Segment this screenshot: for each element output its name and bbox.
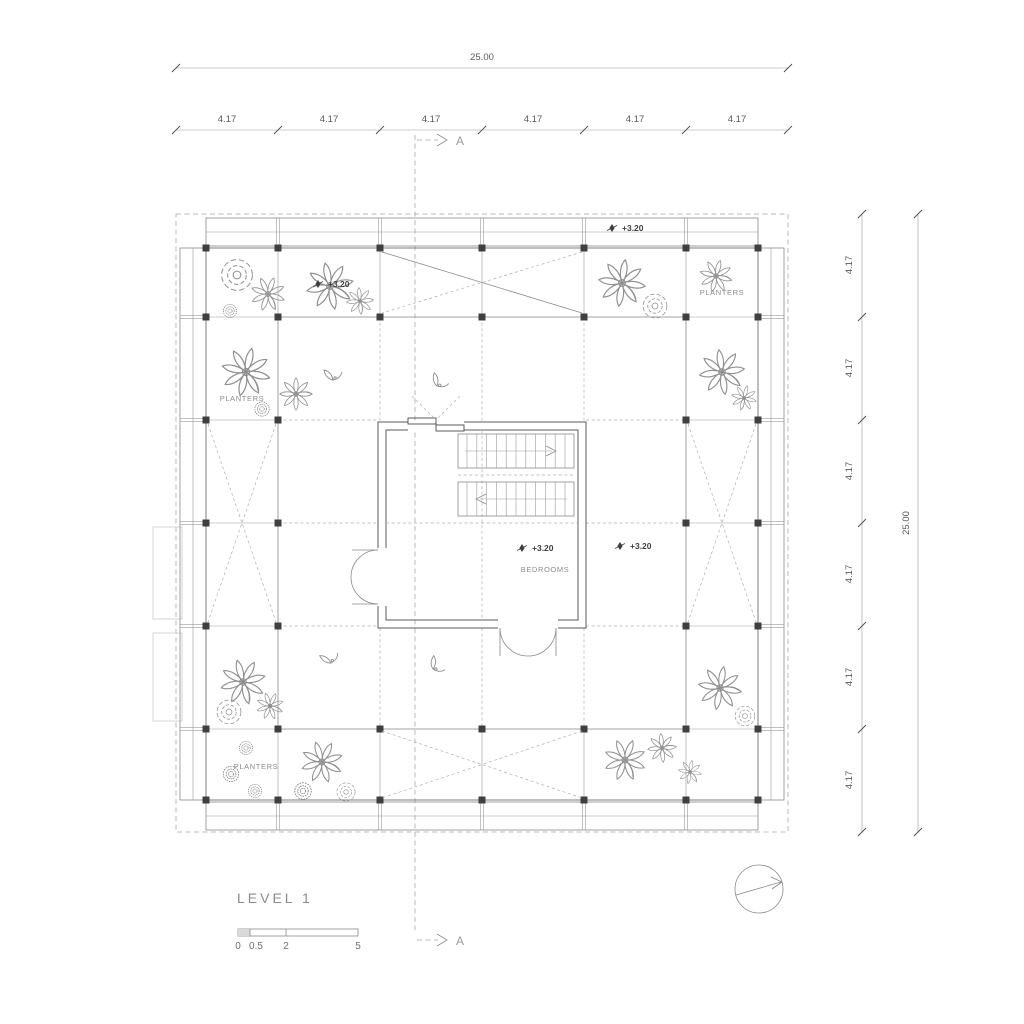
column: [755, 314, 762, 321]
planters-label: PLANTERS: [234, 762, 278, 771]
plant-flower: [697, 347, 748, 398]
column: [683, 797, 690, 804]
dim-label-bay: 4.17: [844, 565, 855, 584]
plant-mum: [255, 402, 269, 416]
dim-label-overall-top: 25.00: [470, 52, 494, 63]
dim-label-bay: 4.17: [844, 462, 855, 481]
plant-mum: [223, 304, 236, 317]
dim-label-overall-right: 25.00: [901, 511, 912, 535]
column: [203, 245, 210, 252]
dim-label-bay: 4.17: [844, 668, 855, 687]
column: [275, 726, 282, 733]
column: [203, 623, 210, 630]
scale-label: 2: [283, 941, 289, 952]
column: [581, 314, 588, 321]
plant-bush: [337, 783, 355, 801]
column: [683, 623, 690, 630]
stairs: [458, 434, 574, 516]
side-canopies: [153, 527, 182, 721]
column: [479, 245, 486, 252]
column: [275, 417, 282, 424]
spot-level-label: +3.20: [630, 541, 652, 551]
plant-flower: [596, 257, 649, 310]
spot-level-label: +3.20: [622, 223, 644, 233]
section-line-AA: A A: [415, 134, 465, 948]
column: [581, 245, 588, 252]
dim-label-bay: 4.17: [422, 114, 441, 125]
north-arrow-circle: [735, 865, 783, 913]
column: [203, 314, 210, 321]
structural-grid: [180, 218, 784, 830]
dim-label-bay: 4.17: [728, 114, 747, 125]
column: [275, 623, 282, 630]
column: [683, 245, 690, 252]
plant-flower: [727, 381, 761, 415]
floor-plan-drawing: 25.00 4.17 4.17 4.17 4.17 4.17 4.17 4.17…: [0, 0, 1024, 1024]
plant-flower: [296, 736, 348, 788]
column: [203, 797, 210, 804]
section-marker-bottom: A: [456, 934, 465, 948]
dim-label-bay: 4.17: [218, 114, 237, 125]
column: [203, 417, 210, 424]
column: [275, 797, 282, 804]
scale-bar: 0 0.5 2 5: [235, 929, 361, 952]
column: [203, 726, 210, 733]
north-arrow: [735, 865, 783, 913]
spot-level-icon: [615, 542, 625, 550]
planting: [212, 254, 761, 801]
dimension-top: 25.00 4.17 4.17 4.17 4.17 4.17 4.17: [172, 52, 792, 134]
dim-label-bay: 4.17: [320, 114, 339, 125]
plant-bush: [222, 260, 253, 291]
plant-flower: [253, 689, 288, 724]
floor-plan-sheet: 25.00 4.17 4.17 4.17 4.17 4.17 4.17 4.17…: [0, 0, 1024, 1024]
section-marker-top: A: [456, 134, 465, 148]
column: [581, 797, 588, 804]
scale-label: 5: [355, 941, 361, 952]
column: [377, 314, 384, 321]
dim-label-bay: 4.17: [844, 771, 855, 790]
title-block: LEVEL 1 0 0.5 2 5: [235, 890, 361, 952]
column: [275, 245, 282, 252]
column: [683, 520, 690, 527]
plant-mum: [239, 741, 252, 754]
plant-mum: [295, 783, 312, 800]
column: [377, 245, 384, 252]
plant-bush: [735, 706, 755, 726]
dimension-right: 4.17 4.17 4.17 4.17 4.17 4.17 25.00: [844, 210, 922, 836]
planters-label: PLANTERS: [220, 394, 264, 403]
plant-bush: [643, 294, 667, 318]
plant-flower: [217, 343, 276, 402]
column: [377, 797, 384, 804]
column: [755, 726, 762, 733]
dim-label-bay: 4.17: [844, 359, 855, 378]
column: [479, 726, 486, 733]
column: [479, 797, 486, 804]
spot-level-icon: [517, 544, 527, 552]
plant-sprig: [324, 370, 342, 380]
column: [755, 245, 762, 252]
plant-sprig: [320, 651, 340, 665]
column: [755, 623, 762, 630]
double-door-left: [351, 548, 387, 606]
plant-sprig: [427, 656, 447, 676]
room-label-bedrooms: BEDROOMS: [521, 565, 570, 574]
column: [755, 417, 762, 424]
spot-level-icon: [607, 224, 617, 232]
column: [683, 314, 690, 321]
plant-flower: [642, 728, 683, 769]
dim-label-bay: 4.17: [626, 114, 645, 125]
plant-bush: [217, 700, 241, 724]
column: [683, 417, 690, 424]
dim-label-bay: 4.17: [524, 114, 543, 125]
column: [683, 726, 690, 733]
spot-level-label: +3.20: [328, 279, 350, 289]
central-core: [351, 396, 586, 656]
drawing-title: LEVEL 1: [237, 890, 313, 906]
spot-level-label: +3.20: [532, 543, 554, 553]
column: [755, 797, 762, 804]
scale-label: 0.5: [249, 941, 263, 952]
column: [479, 314, 486, 321]
plant-flower: [598, 733, 652, 787]
plant-flower: [676, 758, 703, 785]
column: [755, 520, 762, 527]
double-door-bottom: [498, 619, 558, 656]
plant-flower: [246, 272, 290, 316]
plant-flower: [273, 371, 319, 417]
column: [275, 520, 282, 527]
plant-flower: [690, 658, 750, 718]
plant-sprig: [429, 373, 450, 391]
column: [275, 314, 282, 321]
scale-label: 0: [235, 941, 241, 952]
plant-mum: [248, 784, 261, 797]
column: [203, 520, 210, 527]
planters-label: PLANTERS: [700, 288, 744, 297]
dim-label-bay: 4.17: [844, 256, 855, 275]
plant-flower: [212, 651, 273, 712]
sliding-door-top: [408, 396, 464, 431]
